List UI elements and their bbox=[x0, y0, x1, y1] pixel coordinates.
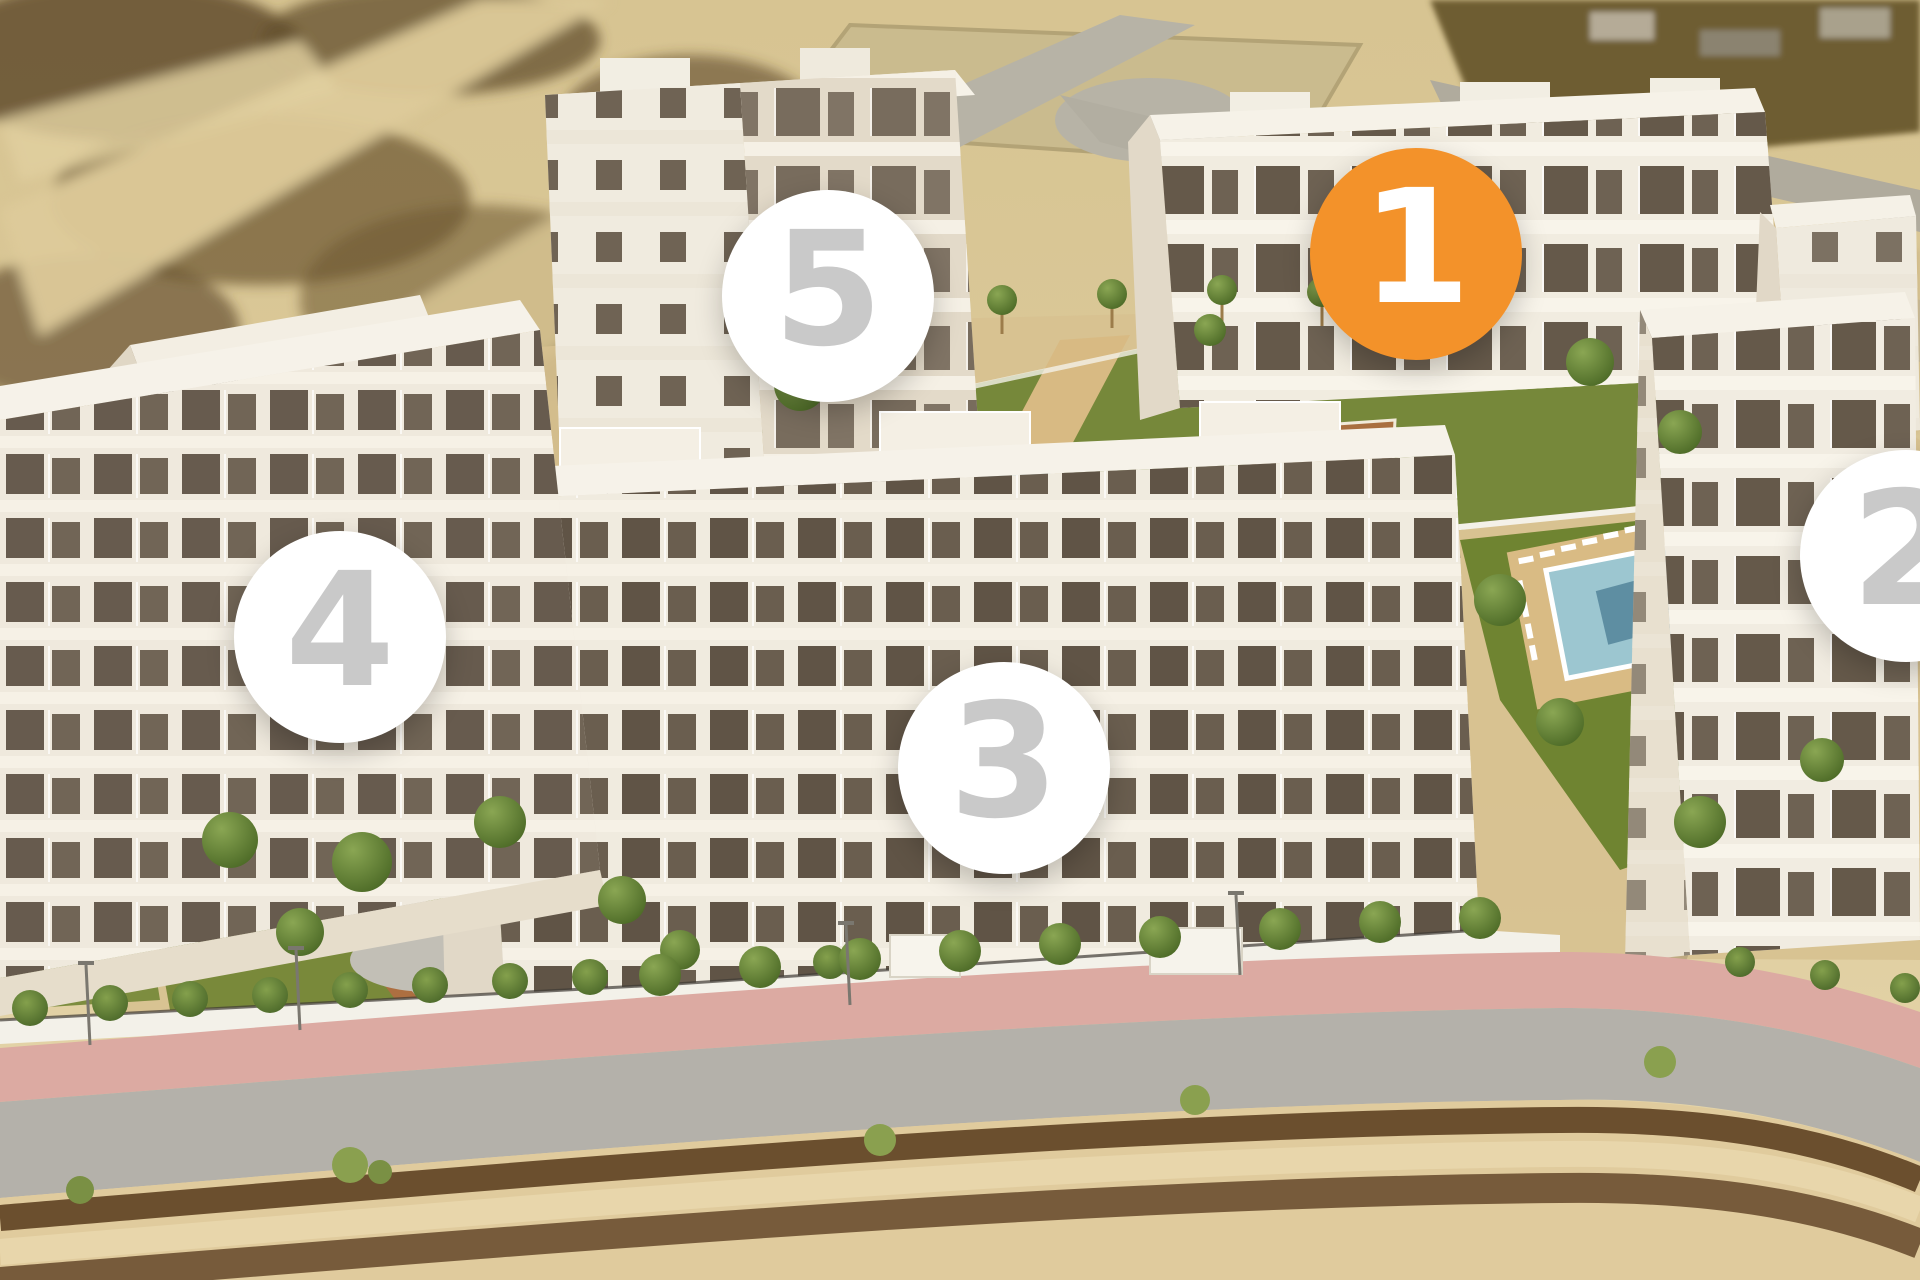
phase-marker-label: 5 bbox=[773, 211, 883, 369]
phase-marker-2[interactable]: 2 bbox=[1800, 450, 1920, 662]
phase-marker-5[interactable]: 5 bbox=[722, 190, 934, 402]
phase-marker-label: 2 bbox=[1851, 471, 1920, 629]
phase-marker-1[interactable]: 1 bbox=[1310, 148, 1522, 360]
phase-markers: 12345 bbox=[0, 0, 1920, 1280]
phase-marker-label: 1 bbox=[1361, 169, 1471, 327]
phase-marker-label: 4 bbox=[285, 552, 395, 710]
phase-marker-3[interactable]: 3 bbox=[898, 662, 1110, 874]
aerial-development-view: 12345 bbox=[0, 0, 1920, 1280]
phase-marker-4[interactable]: 4 bbox=[234, 531, 446, 743]
phase-marker-label: 3 bbox=[949, 683, 1059, 841]
